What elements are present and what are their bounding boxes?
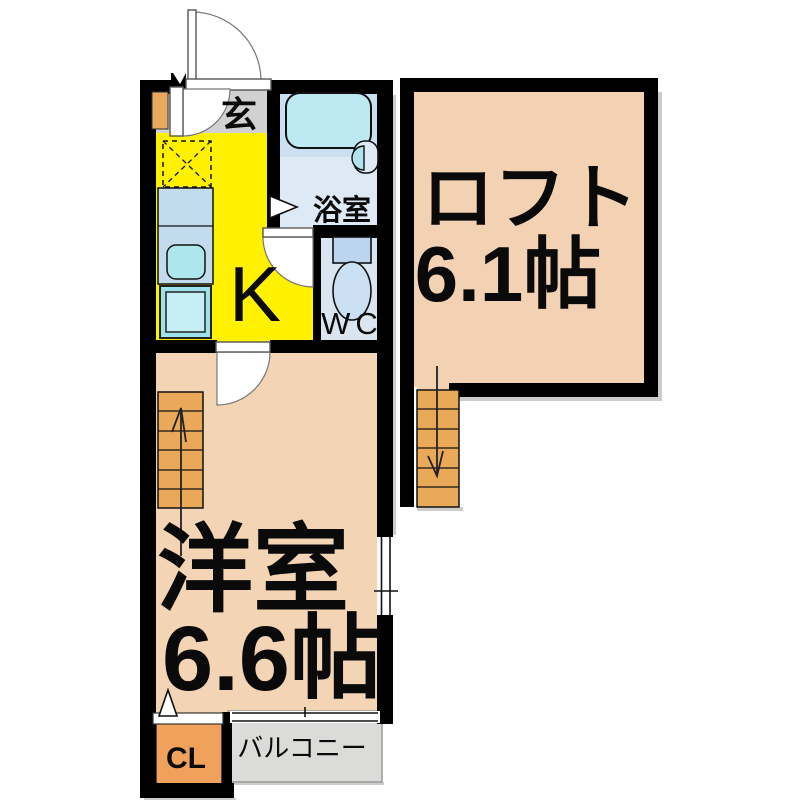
loft-wall-bottom [449,383,658,397]
wall-segment [222,712,232,798]
kitchen-label: K [229,250,281,338]
wall-segment [140,783,234,798]
western-room-size-label: 6.6帖 [162,608,382,710]
loft-wall-top [400,78,658,92]
entrance-side-block [152,92,168,129]
bathroom-label: 浴室 [313,193,371,227]
loft-label: ロフト [422,159,638,239]
loft-wall-left [400,78,414,507]
wc-label: WC [321,306,383,341]
balcony-label: バルコニー [237,733,366,763]
entrance-door-open-leaf [188,10,196,80]
shadow [393,95,396,535]
loft-wall-right [644,78,658,397]
shadow [658,92,662,397]
closet-label: CL [166,742,206,775]
genkan-door-leaf [170,87,183,136]
entrance-label: 玄 [221,94,257,135]
wall-segment [140,340,217,353]
wall-segment [271,80,393,94]
washer-pan-inner [166,292,205,332]
wc-door-leaf [263,228,313,237]
toilet-tank [333,237,371,263]
floor-plan-drawing: 玄 浴室 K WC ロフト 6.1帖 洋室 6.6帖 CL バルコニー [0,0,800,800]
wall-segment [313,232,321,342]
wall-segment [270,340,393,353]
loft-size-label: 6.1帖 [415,230,601,318]
entrance-door-leaf [186,79,271,90]
room-door-leaf [216,342,270,352]
floor-plan-canvas: 玄 浴室 K WC ロフト 6.1帖 洋室 6.6帖 CL バルコニー [0,0,800,800]
wall-segment [140,80,156,798]
bathtub [286,93,371,148]
shadow [455,397,662,401]
kitchen-sink [167,245,205,279]
